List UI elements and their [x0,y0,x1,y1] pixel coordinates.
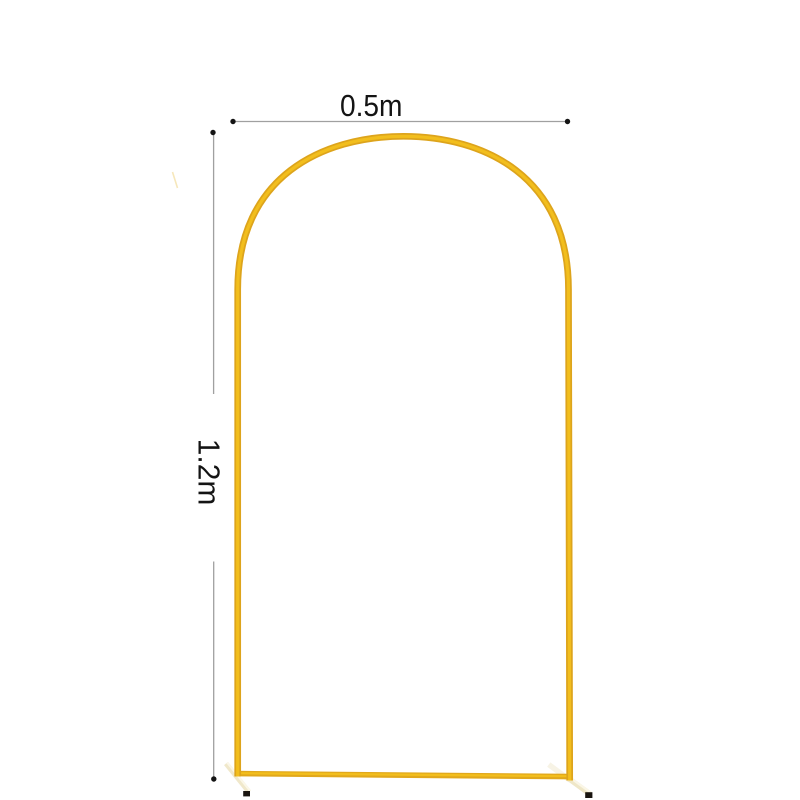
svg-text:1.2m: 1.2m [192,439,227,506]
svg-text:0.5m: 0.5m [340,88,403,123]
